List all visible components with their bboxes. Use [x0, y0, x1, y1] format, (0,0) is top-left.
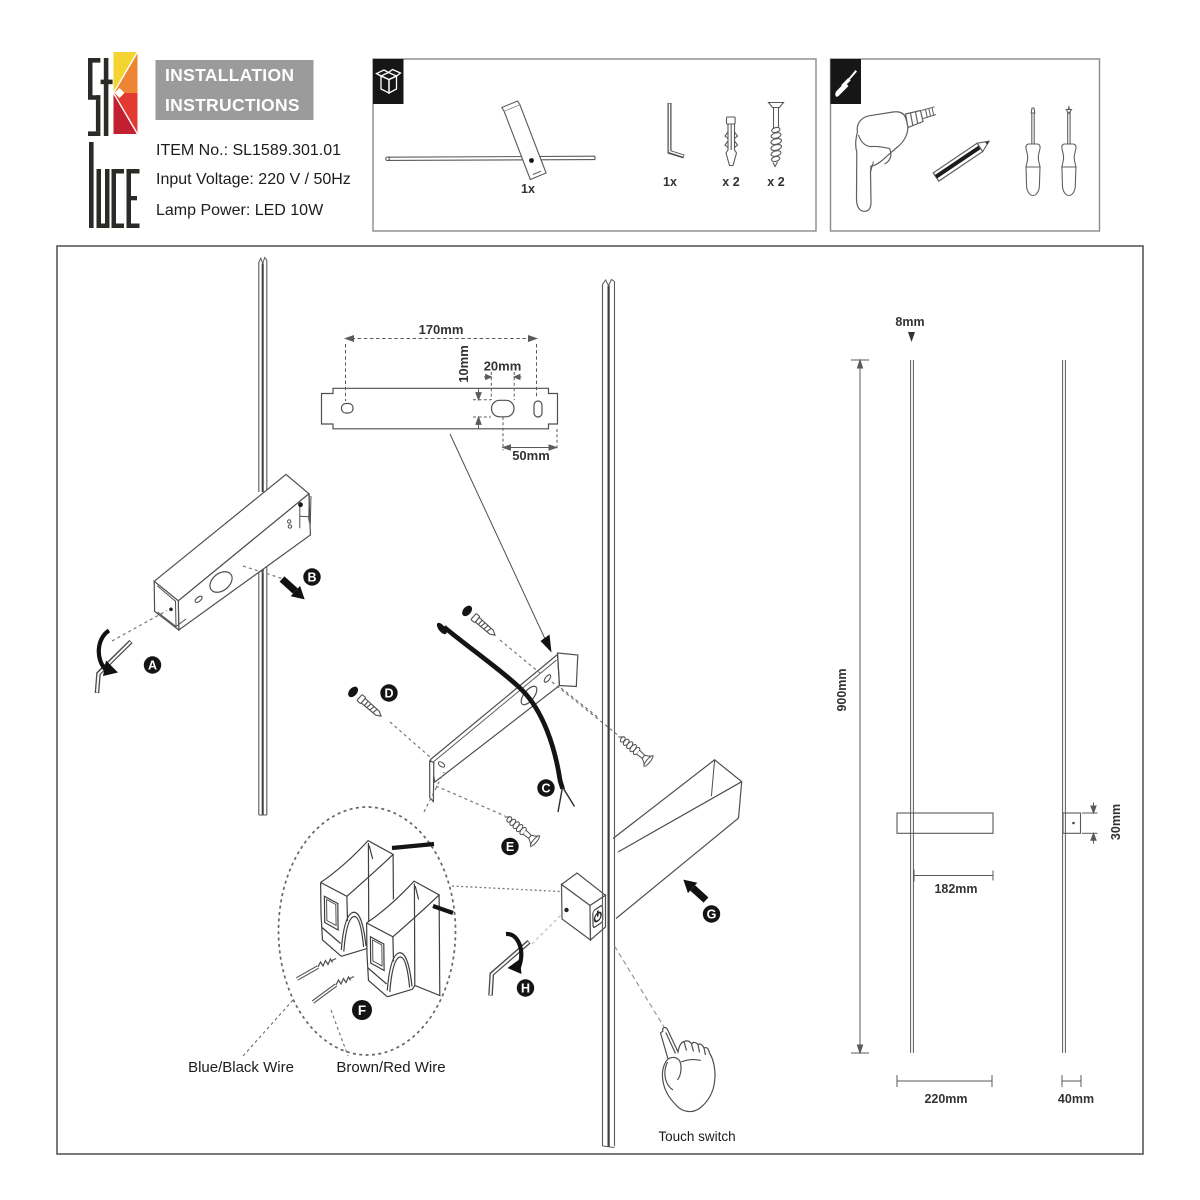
svg-text:182mm: 182mm [934, 882, 977, 896]
svg-text:INSTRUCTIONS: INSTRUCTIONS [165, 95, 300, 115]
svg-text:G: G [707, 908, 717, 922]
svg-text:40mm: 40mm [1058, 1092, 1094, 1106]
svg-text:50mm: 50mm [512, 448, 550, 463]
svg-text:8mm: 8mm [895, 315, 924, 329]
svg-text:Brown/Red Wire: Brown/Red Wire [336, 1059, 445, 1076]
svg-text:INSTALLATION: INSTALLATION [165, 65, 294, 85]
svg-text:20mm: 20mm [484, 359, 522, 374]
svg-text:1x: 1x [663, 175, 677, 189]
svg-text:Blue/Black Wire: Blue/Black Wire [188, 1059, 294, 1076]
svg-text:Input Voltage: 220 V / 50Hz: Input Voltage: 220 V / 50Hz [156, 171, 351, 188]
svg-text:B: B [307, 571, 316, 585]
svg-text:1x: 1x [521, 182, 535, 196]
svg-text:900mm: 900mm [835, 668, 849, 711]
svg-text:ITEM No.: SL1589.301.01: ITEM No.: SL1589.301.01 [156, 142, 341, 159]
svg-text:F: F [358, 1003, 366, 1018]
svg-text:Touch switch: Touch switch [658, 1129, 735, 1144]
svg-text:D: D [384, 687, 393, 701]
svg-text:H: H [521, 982, 530, 996]
svg-text:Lamp Power: LED 10W: Lamp Power: LED 10W [156, 202, 324, 219]
svg-text:30mm: 30mm [1109, 804, 1123, 840]
svg-text:220mm: 220mm [924, 1092, 967, 1106]
svg-text:x 2: x 2 [722, 175, 739, 189]
svg-text:E: E [506, 840, 514, 854]
svg-text:C: C [541, 782, 550, 796]
svg-text:10mm: 10mm [456, 345, 471, 383]
svg-text:x 2: x 2 [767, 175, 784, 189]
svg-text:170mm: 170mm [419, 322, 464, 337]
svg-text:A: A [148, 659, 157, 673]
